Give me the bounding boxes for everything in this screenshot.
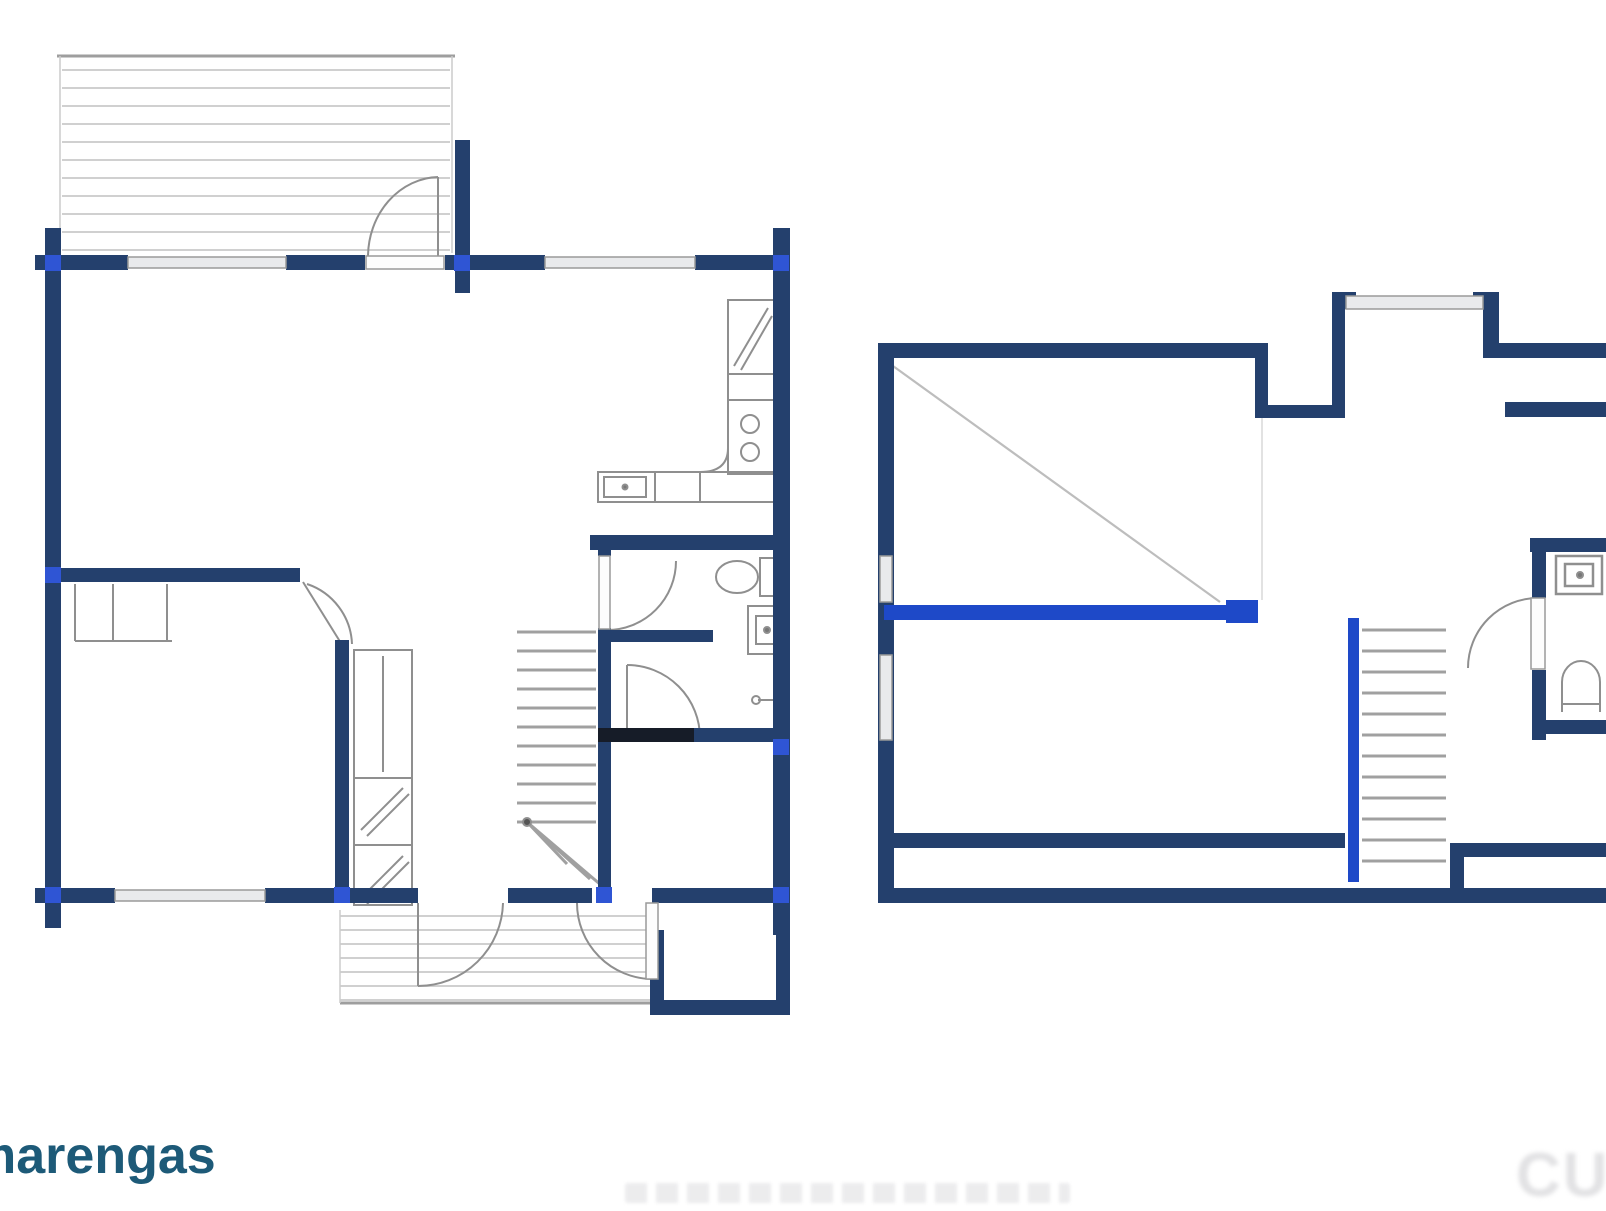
door-leaves <box>1531 598 1545 669</box>
floorplan-canvas <box>0 0 1606 1205</box>
roof-slope-line <box>893 366 1220 602</box>
dark-wall-segment <box>598 728 694 742</box>
terrace-deck-sides <box>60 56 452 1003</box>
partial-watermark-right: CUE <box>1516 1140 1606 1211</box>
upper-floor-plan <box>878 292 1606 903</box>
floorplan-page: { "branding": { "logo_text": "marengas" … <box>0 0 1606 1205</box>
staircase-winder-steps <box>527 822 608 891</box>
walls <box>878 292 1606 903</box>
company-logo: marengas <box>0 1126 216 1186</box>
illegible-watermark-center <box>625 1183 1070 1203</box>
door-leaves <box>366 256 658 979</box>
door-swings-and-fixtures <box>307 177 770 986</box>
ground-floor-plan <box>35 56 790 1015</box>
furniture-fixture-rects <box>354 300 788 905</box>
staircase-treads <box>517 632 596 822</box>
staircase-treads <box>1362 630 1446 861</box>
